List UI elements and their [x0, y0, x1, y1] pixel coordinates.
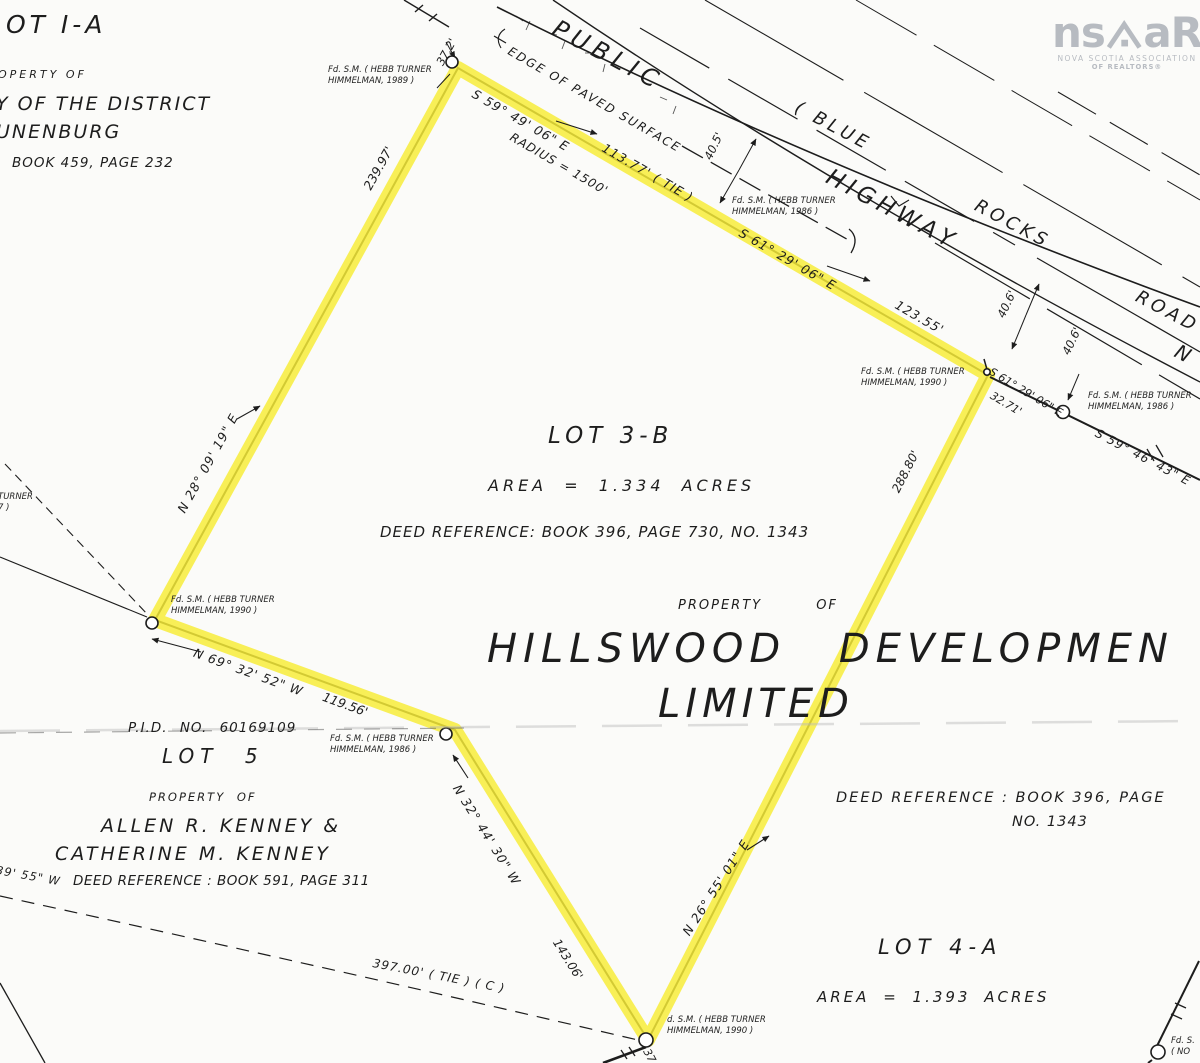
nsar-logo-text-left: ns [1052, 16, 1105, 50]
lot1a-owner-line1: Y OF THE DISTRICT [0, 95, 211, 114]
lot1a-property-of: OPERTY OF [0, 69, 87, 80]
lot3b-boundary-line [155, 68, 988, 1040]
leader-lines-west [0, 464, 149, 617]
lot5-owner-line2: CATHERINE M. KENNEY [55, 845, 331, 864]
lot5-property-of: PROPERTY OF [149, 792, 257, 804]
south-corner-lines [603, 961, 1199, 1063]
lot5-owner-line1: ALLEN R. KENNEY & [101, 817, 341, 836]
lot5-deed-reference: DEED REFERENCE : BOOK 591, PAGE 311 [73, 875, 370, 889]
lot1a-owner-line2: UNENBURG [0, 123, 121, 142]
lot3b-property-of: PROPERTY OF [678, 599, 838, 612]
monument-label: Fd. S.M. ( HEBB TURNER HIMMELMAN, 1986 ) [732, 196, 836, 217]
monument-label: Fd. S.M. ( HEBB TURNER HIMMELMAN, 1986 ) [1088, 391, 1192, 412]
monument-label: Fd. S.M. ( HEBB TURNER HIMMELMAN, 1990 ) [861, 367, 965, 388]
lot4a-deed-reference-line2: NO. 1343 [1012, 815, 1088, 830]
lot3b-deed-reference: DEED REFERENCE: BOOK 396, PAGE 730, NO. … [380, 525, 809, 540]
monument-markers [146, 56, 1165, 1059]
nsar-logo: ns aR NOVA SCOTIA ASSOCIATION OF REALTOR… [1052, 16, 1200, 71]
lot5-pid: P.I.D. NO. 60169109 [128, 722, 296, 736]
lot3b-owner-line2: LIMITED [658, 684, 854, 724]
lot3b-highlight [155, 68, 988, 1040]
monument-label-partial: TURNER 7 ) [0, 492, 33, 513]
lot4a-title: LOT 4-A [878, 937, 1002, 958]
lot3b-owner-line1: HILLSWOOD DEVELOPMEN [487, 629, 1174, 669]
monument-label: d. S.M. ( HEBB TURNER HIMMELMAN, 1990 ) [667, 1015, 766, 1036]
lot4a-deed-reference-line1: DEED REFERENCE : BOOK 396, PAGE [836, 791, 1166, 806]
house-roof-icon [1105, 16, 1143, 50]
nsar-tagline2: OF REALTORS® [1052, 63, 1200, 71]
monument-label-partial: Fd. S. ( NO [1171, 1036, 1195, 1057]
monument-label: Fd. S.M. ( HEBB TURNER HIMMELMAN, 1989 ) [328, 65, 432, 86]
lot1a-title: OT I-A [6, 12, 106, 37]
lot5-title: LOT 5 [162, 746, 264, 766]
tie-lines-south [0, 896, 638, 1063]
lot3b-area: AREA = 1.334 ACRES [488, 478, 755, 494]
monument-label: Fd. S.M. ( HEBB TURNER HIMMELMAN, 1986 ) [330, 734, 434, 755]
nsar-logo-text-right: aR [1143, 16, 1200, 50]
lot1a-deed-reference: BOOK 459, PAGE 232 [12, 157, 174, 171]
monument-label: Fd. S.M. ( HEBB TURNER HIMMELMAN, 1990 ) [171, 595, 275, 616]
survey-plan: ns aR NOVA SCOTIA ASSOCIATION OF REALTOR… [0, 0, 1200, 1063]
lot4a-area: AREA = 1.393 ACRES [817, 990, 1049, 1005]
nsar-tagline: NOVA SCOTIA ASSOCIATION [1052, 54, 1200, 63]
lot3b-title: LOT 3-B [548, 425, 673, 448]
